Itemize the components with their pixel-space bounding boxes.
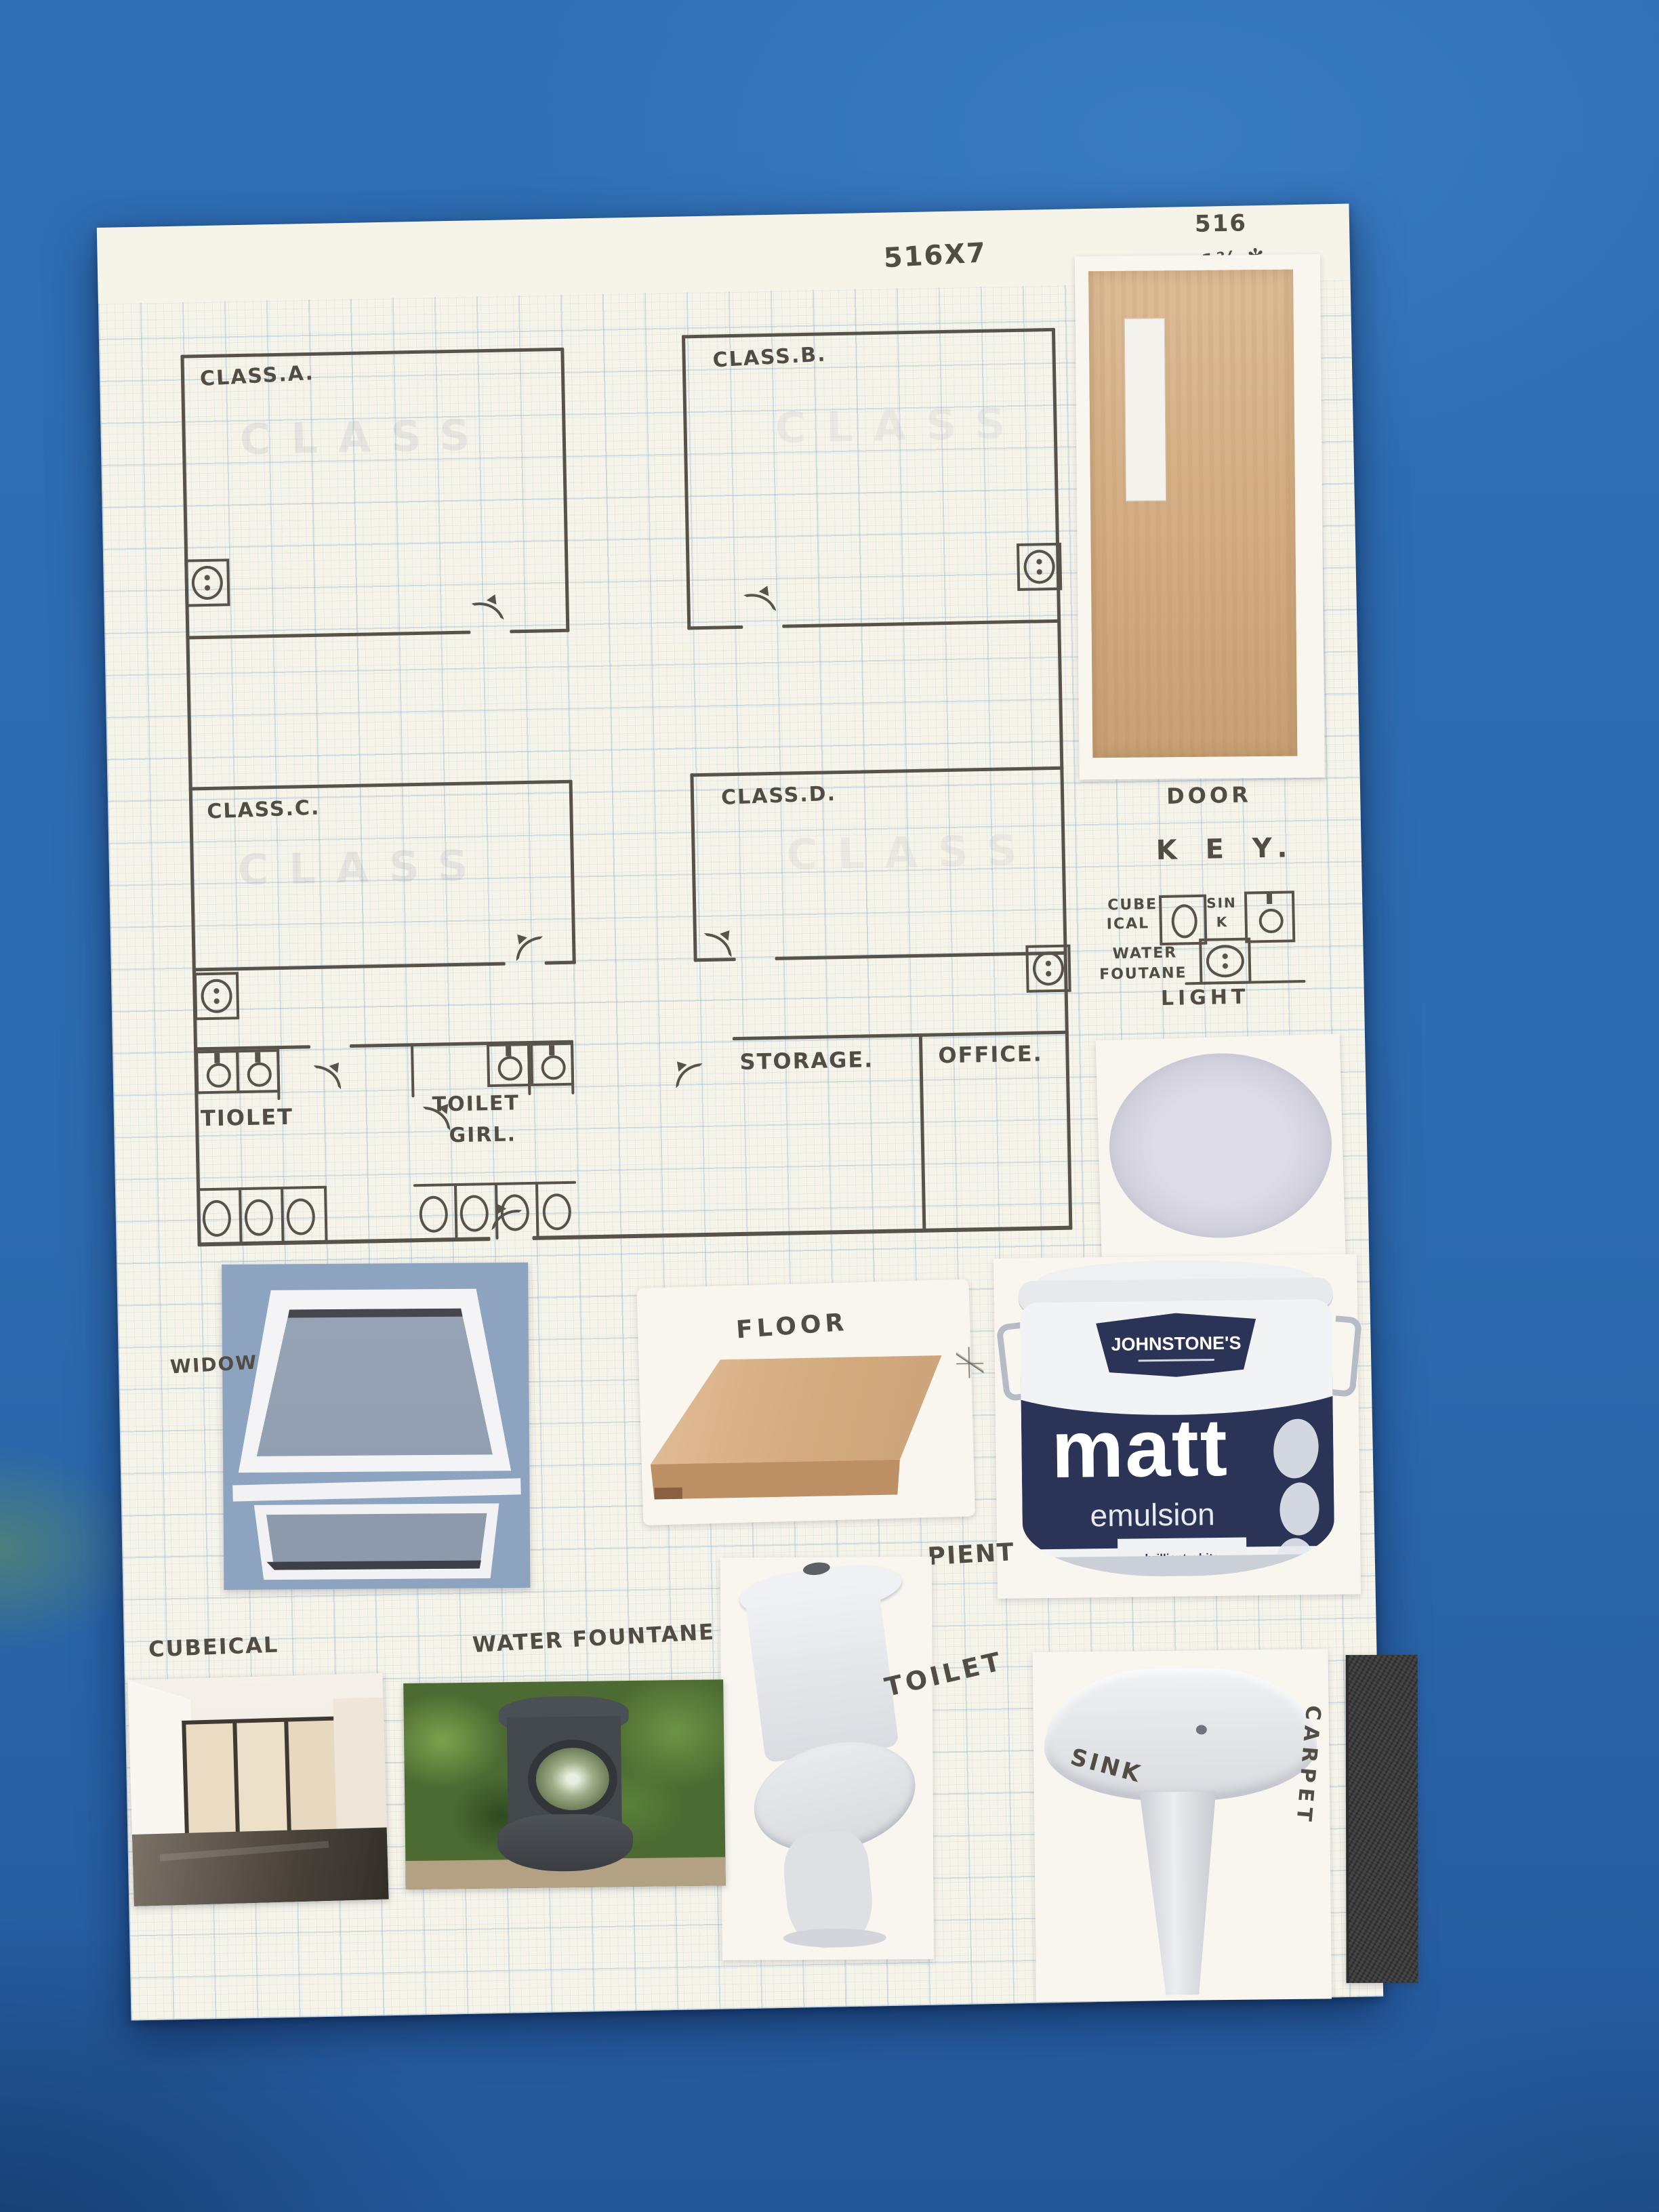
paint-label: PIENT [927, 1538, 1016, 1571]
toilet-oval-icon [542, 1193, 571, 1231]
sink-pedestal [1134, 1791, 1223, 1995]
door-swing-arrow [674, 1055, 705, 1087]
wall-segment [281, 1187, 285, 1244]
wall-segment [690, 766, 1063, 777]
bucket-body: JOHNSTONE'S matt emulsion brilliant whit… [1020, 1299, 1335, 1578]
door-swing-arrow [739, 579, 777, 618]
door-label: DOOR [1166, 781, 1252, 808]
light-symbol-box [194, 972, 239, 1020]
wall-segment [454, 1183, 458, 1240]
key-title: K E Y. [1155, 832, 1297, 866]
water-fountain-label: WATER FOUNTANE [472, 1619, 716, 1658]
wall-segment [1052, 328, 1073, 1229]
sink-symbol-box [487, 1043, 531, 1087]
photo-of-moodboard: { "annotations": { "calc1": "516X7", "ca… [0, 0, 1659, 2212]
toilet-tank [745, 1579, 899, 1763]
light-icon [1023, 550, 1055, 584]
door-vision-panel [1124, 318, 1166, 501]
sink-symbol-box [236, 1049, 280, 1093]
cubical-label: CUBEICAL [148, 1632, 279, 1662]
plank-groove [654, 1487, 682, 1499]
tap-icon [506, 1046, 511, 1056]
carpet-swatch [1346, 1655, 1418, 1983]
wall-segment [180, 355, 201, 1246]
door-image [1088, 270, 1297, 758]
key-label-cubical: CUBE [1107, 896, 1158, 914]
window-label: WIDOW [169, 1351, 258, 1378]
cubical-door [237, 1722, 287, 1845]
room-label-class-d: CLASS.D. [720, 782, 836, 810]
key-box-sink [1244, 890, 1295, 943]
room-label-class-c: CLASS.C. [207, 796, 321, 823]
room-label-class-b: CLASS.B. [712, 342, 827, 372]
light-icon [201, 979, 232, 1013]
wall-segment [775, 951, 1067, 960]
tap-icon [214, 1053, 220, 1063]
ghost-text: CLASS [775, 398, 1026, 453]
wall-segment [560, 348, 569, 632]
johnstones-badge: JOHNSTONE'S [1096, 1311, 1256, 1379]
tap-icon [549, 1045, 554, 1055]
door-swing-arrow [310, 1057, 342, 1088]
tap-icon [255, 1052, 260, 1063]
key-label-water-fountain: FOUTANE [1099, 964, 1187, 983]
wall-segment [197, 1186, 327, 1191]
wall-segment [186, 631, 470, 640]
room-label-toilet-boys: TIOLET [201, 1104, 294, 1132]
wall-segment [690, 773, 697, 962]
sink-bowl-icon [247, 1063, 272, 1088]
key-box-cubical [1159, 895, 1207, 945]
wall-segment [682, 335, 691, 630]
water-fountain-photo [403, 1679, 726, 1889]
cubical-oval-icon [1171, 904, 1197, 939]
paint-bucket-image: JOHNSTONE'S matt emulsion brilliant whit… [998, 1257, 1357, 1593]
wall-segment [687, 626, 743, 630]
ghost-text: CLASS [786, 825, 1038, 880]
sink-tap-hole [1196, 1725, 1207, 1734]
toilet-cutout [720, 1557, 934, 1961]
wall-segment [535, 1182, 539, 1239]
matt-text: matt [1051, 1401, 1229, 1496]
wall-segment [532, 1226, 1072, 1240]
toilet-oval-icon [244, 1199, 273, 1236]
light-symbol-box [1025, 945, 1071, 993]
ghost-text: CLASS [237, 840, 489, 895]
toilet-oval-icon [286, 1198, 315, 1235]
wall-segment [180, 348, 563, 359]
key-label-water-fountain: WATER [1112, 945, 1177, 963]
graph-paper-sheet: 516X7 516 3 6 1⅔ ✻ [97, 204, 1383, 2021]
key-label-cubical: ICAL [1107, 915, 1150, 933]
light-icon [191, 566, 223, 600]
door-swing-arrow [466, 588, 505, 627]
door-swing-arrow [491, 1197, 527, 1233]
emulsion-text: emulsion [1090, 1496, 1215, 1534]
floor-plank-image [649, 1342, 964, 1515]
room-label-toilet-girls: GIRL. [449, 1122, 516, 1147]
pencil-calculation: 516X7 [883, 237, 987, 274]
sink-cutout [1033, 1649, 1332, 2002]
cubical-door [288, 1721, 338, 1844]
sink-basin [1044, 1667, 1317, 1803]
oval-shape [1107, 1050, 1334, 1241]
cubical-floor [132, 1828, 389, 1906]
toilet-foot [783, 1928, 886, 1948]
door-cutout [1075, 254, 1325, 779]
wall-segment [694, 958, 736, 962]
cubical-photo [127, 1673, 388, 1906]
wall-segment [569, 780, 576, 964]
door-swing-arrow [514, 928, 546, 960]
sink-symbol-box [530, 1042, 574, 1086]
room-label-toilet-girls: TOILET [432, 1091, 520, 1116]
johnstones-brand-text: JOHNSTONE'S [1096, 1332, 1256, 1355]
key-label-light: LIGHT [1161, 985, 1250, 1010]
wall-segment [192, 962, 506, 972]
wall-segment [411, 1043, 415, 1097]
key-box-light [1199, 937, 1251, 984]
wall-segment [239, 1187, 243, 1244]
wall-segment [733, 1031, 1069, 1041]
room-label-office: OFFICE. [938, 1040, 1043, 1068]
wall-segment [919, 1033, 926, 1232]
light-symbol-box [184, 558, 230, 607]
pencil-scribble [956, 1347, 984, 1378]
door-swing-arrow [701, 924, 733, 956]
light-symbol-box [1017, 543, 1062, 591]
sink-symbol-box [195, 1050, 239, 1094]
wall-segment [682, 328, 1055, 339]
wall-segment [189, 780, 573, 791]
oval-cutout [1096, 1033, 1346, 1265]
toilet-oval-icon [419, 1195, 448, 1233]
key-label-sink: SIN [1206, 895, 1237, 912]
sink-bowl-icon [541, 1055, 566, 1080]
room-label-storage: STORAGE. [739, 1046, 874, 1075]
sink-bowl-icon [206, 1063, 231, 1088]
badge-underline [1139, 1359, 1214, 1361]
tap-icon [1267, 894, 1272, 904]
sink-bowl-icon [497, 1057, 523, 1082]
window-photo [222, 1263, 530, 1590]
window-sash-bar [232, 1478, 520, 1501]
sink-bowl-icon [1258, 909, 1284, 934]
ghost-text: CLASS [239, 410, 491, 464]
wall-segment [782, 619, 1061, 628]
pencil-calculation: 516 [1195, 209, 1248, 237]
key-label-sink: K [1216, 914, 1229, 930]
cubical-door [186, 1723, 236, 1847]
toilet-oval-icon [202, 1200, 231, 1237]
room-label-class-a: CLASS.A. [199, 361, 314, 391]
light-icon [1033, 951, 1065, 986]
toilet-oval-icon [459, 1195, 489, 1232]
wall-segment [545, 961, 576, 965]
wall-segment [324, 1186, 328, 1243]
bucket-base-rim [1023, 1554, 1334, 1578]
wall-segment [510, 629, 569, 634]
cubical-right-wall [333, 1698, 387, 1844]
light-icon [1206, 945, 1244, 978]
